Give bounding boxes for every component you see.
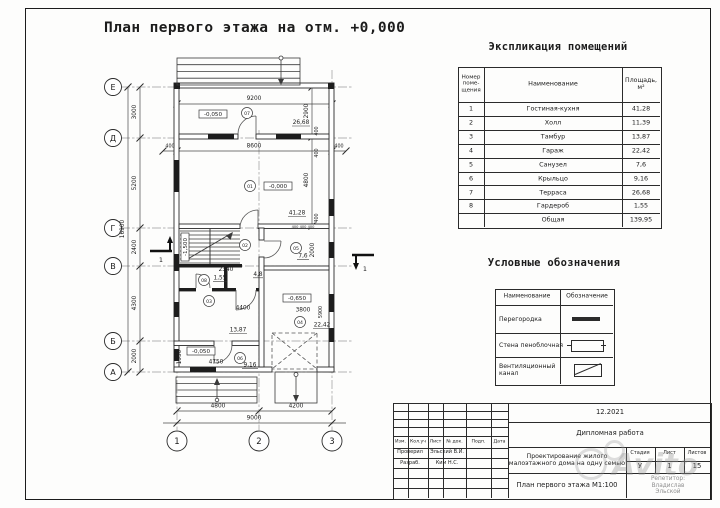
area-ward: 1,55 (214, 276, 227, 282)
schedule-col-number: Номер поме- щения (461, 74, 480, 93)
area-porch: 9,16 (244, 363, 257, 369)
schedule-col-area: Площадь, м² (625, 77, 657, 91)
schedule-col-name: Наименование (528, 80, 578, 87)
mark-hall: 02 (242, 243, 248, 249)
dim-gv: 2400 (132, 239, 138, 254)
stamp-col-data: Дата (494, 439, 506, 444)
porch-steps (176, 377, 257, 403)
dim-400-r1: 400 (314, 126, 320, 135)
dim-4800-bottom: 4800 (211, 404, 226, 410)
area-garage: 22,42 (314, 323, 331, 329)
schedule-row-name: Холл (545, 119, 561, 126)
stamp-col-izm: Изм. (395, 439, 406, 444)
mark-ward: 08 (201, 278, 207, 284)
schedule-row-num: 3 (469, 133, 473, 140)
stamp-work-type: Дипломная работа (576, 430, 644, 438)
schedule-row-area: 26,68 (632, 189, 650, 196)
dim-1950: 1950 (177, 349, 183, 364)
schedule-row-name: Терраса (539, 189, 566, 196)
dim-2340: 2340 (219, 267, 234, 273)
schedule-row-num: 7 (469, 189, 473, 196)
dim-4200-bottom: 4200 (289, 404, 304, 410)
stamp-sheet-value: 1 (667, 463, 671, 471)
schedule-row-name: Общая (542, 216, 565, 223)
legend-col-name: Наименование (504, 294, 551, 301)
stamp-stage-value: У (638, 463, 642, 471)
level-stair: -1,500 (183, 238, 189, 256)
stamp-developed-name: Ким Н.С. (436, 461, 459, 467)
stamp-developed-label: Разраб. (400, 461, 420, 467)
schedule-row-name: Гостиная-кухня (527, 105, 580, 112)
legend-item-partition: Перегородка (499, 316, 542, 323)
stamp-tutor-name: Репетитор: Владислав Эльской (642, 476, 694, 496)
schedule-row-area: 11,39 (632, 119, 650, 126)
mark-terrace: 07 (244, 111, 250, 117)
schedule-row-num: 1 (469, 105, 473, 112)
schedule-row-num: 2 (469, 119, 473, 126)
doors (196, 116, 281, 363)
dim-total-v: 16900 (120, 219, 126, 238)
dim-dg: 5200 (132, 175, 138, 190)
mark-wc: 05 (293, 246, 299, 252)
axis-2: 2 (256, 437, 261, 447)
area-living: 41,28 (289, 211, 306, 217)
schedule-row-area: 41,28 (632, 105, 650, 112)
dim-4750: 4750 (209, 360, 224, 366)
level-living: -0,000 (269, 184, 287, 190)
dim-9200: 9200 (247, 96, 262, 102)
schedule-row-name: Санузел (539, 161, 567, 168)
mark-porch: 06 (237, 356, 243, 362)
legend-title: Условные обозначения (488, 257, 620, 269)
dim-8600: 8600 (247, 144, 262, 150)
garage-apron (275, 372, 317, 403)
axis-3: 3 (329, 437, 334, 447)
stamp-checked-name: Эльский В.И. (430, 450, 464, 456)
dim-2900: 2900 (304, 103, 310, 118)
schedule-row-area: 7,6 (636, 161, 646, 168)
dim-400-r3: 400 (314, 213, 320, 222)
garage-gate-symbol (272, 333, 317, 369)
axis-e: Е (110, 83, 115, 92)
schedule-row-num: 4 (469, 147, 473, 154)
partition-symbol (572, 317, 600, 321)
dim-400-r2: 400 (314, 148, 320, 157)
dim-3800: 3800 (296, 308, 311, 314)
schedule-row-num: 5 (469, 161, 473, 168)
axis-1: 1 (174, 437, 179, 447)
drawing-sheet: План первого этажа на отм. +0,000 (0, 0, 720, 508)
schedule-row-area: 1,55 (634, 202, 648, 209)
area-terrace: 26,68 (293, 120, 310, 126)
stamp-col-list: Лист (430, 439, 442, 444)
terrace-steps (177, 56, 300, 85)
section-label-left: 1 (159, 256, 163, 264)
dim-ba: 2000 (132, 348, 138, 363)
stamp-drawing-name: План первого этажа М1:100 (517, 482, 618, 490)
dim-5900: 5900 (318, 306, 324, 318)
dim-4400: 4400 (236, 306, 251, 312)
area-wc: 7,6 (298, 254, 308, 260)
schedule-row-area: 139,95 (630, 216, 652, 223)
stamp-col-podp: Подп. (472, 439, 486, 444)
section-label-right: 1 (363, 265, 367, 273)
stamp-sheet-label: Лист (663, 451, 676, 457)
dim-4800-right: 4800 (304, 172, 310, 187)
stamp-checked-label: Проверил (397, 450, 423, 456)
level-porch: -0,050 (192, 349, 210, 355)
schedule-row-area: 9,16 (634, 175, 648, 182)
vent-channel-symbol (574, 364, 602, 377)
dim-400-right: 400 (334, 144, 343, 150)
dim-2000-wc: 2000 (310, 242, 316, 257)
legend-item-foam-wall: Стена пеноблочная (499, 342, 563, 349)
axis-g: Г (111, 224, 116, 233)
axis-v: В (110, 262, 116, 271)
stamp-col-kol: Кол.уч (410, 439, 426, 444)
schedule-title: Экспликация помещений (488, 41, 627, 53)
stamp-stage-label: Стадия (630, 451, 649, 457)
dim-ed: 3000 (132, 104, 138, 119)
schedule-row-num: 8 (469, 202, 473, 209)
level-terrace: -0,050 (204, 112, 222, 118)
dim-400-left: 400 (165, 144, 174, 150)
dim-total-h: 9000 (247, 416, 262, 422)
dim-4-8: 4,8 (253, 272, 263, 278)
schedule-row-area: 22,42 (632, 147, 650, 154)
schedule-row-name: Гараж (542, 147, 564, 154)
axis-a: А (110, 368, 116, 377)
axis-d: Д (110, 134, 116, 143)
area-tambur: 13,87 (230, 328, 247, 334)
mark-living: 01 (247, 184, 253, 190)
foam-wall-symbol (571, 340, 604, 352)
schedule-row-name: Гардероб (537, 202, 569, 209)
mark-garage: 04 (297, 320, 303, 326)
schedule-row-area: 13,87 (632, 133, 650, 140)
level-garage: -0,650 (288, 296, 306, 302)
axis-b: Б (110, 337, 116, 346)
legend-item-vent-channel: Вентиляционный канал (499, 363, 555, 377)
schedule-row-num: 6 (469, 175, 473, 182)
legend-col-symbol: Обозначение (566, 294, 608, 301)
dim-vb: 4300 (132, 295, 138, 310)
mark-tambur: 03 (206, 299, 212, 305)
schedule-row-name: Тамбур (541, 133, 565, 140)
stamp-sheets-value: 15 (693, 463, 702, 471)
stamp-date: 12.2021 (596, 409, 624, 417)
stamp-col-doc: № док. (446, 439, 462, 444)
dim-micro-400s: 400 400 400 (292, 225, 316, 229)
schedule-row-name: Крыльцо (538, 175, 568, 182)
stamp-project-name: Проектирование жилого малоэтажного дома … (509, 453, 625, 467)
stamp-sheets-label: Листов (688, 451, 707, 457)
